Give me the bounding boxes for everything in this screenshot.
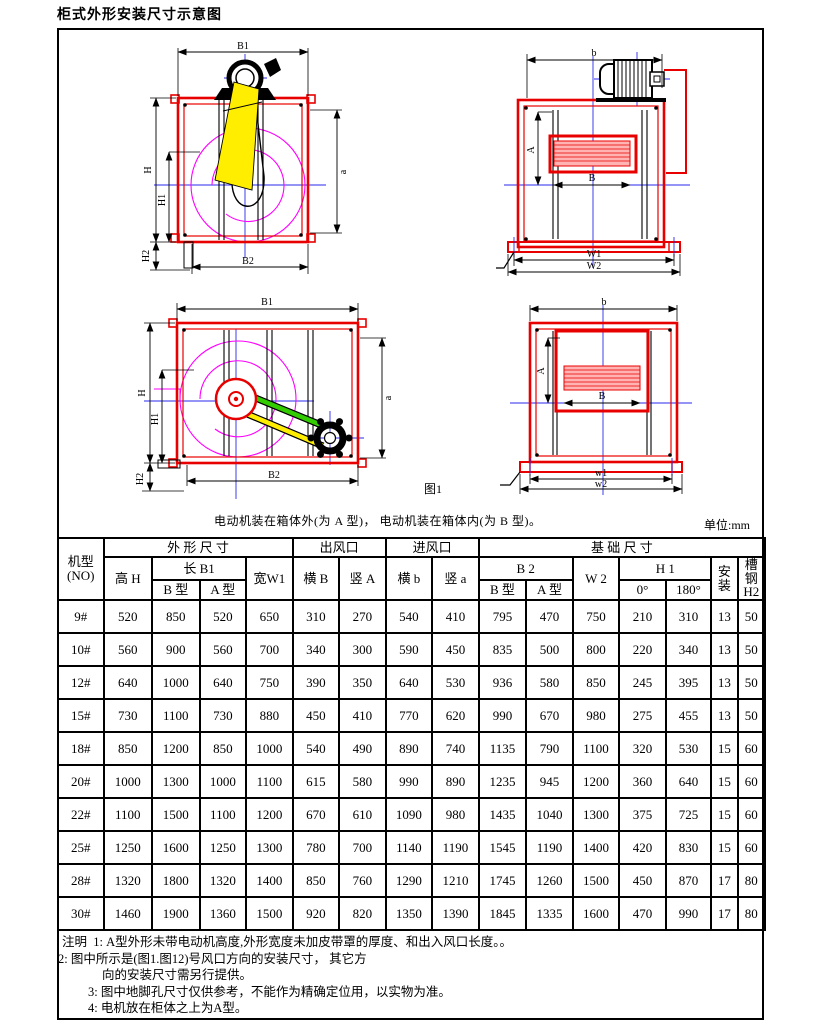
value-cell: 945 bbox=[526, 765, 573, 798]
figure-label: 图1 bbox=[424, 480, 442, 497]
header-outlet: 出风口 bbox=[293, 538, 386, 557]
model-cell: 10# bbox=[58, 633, 104, 666]
value-cell: 640 bbox=[386, 666, 433, 699]
value-cell: 936 bbox=[479, 666, 527, 699]
header-deg0: 0° bbox=[619, 580, 666, 600]
table-row: 28#1320180013201400850760129012101745126… bbox=[58, 864, 765, 897]
value-cell: 80 bbox=[738, 864, 765, 897]
drawing-side-view-a: b A B W1 W2 bbox=[496, 40, 696, 285]
value-cell: 1600 bbox=[573, 897, 620, 930]
value-cell: 60 bbox=[738, 732, 765, 765]
value-cell: 890 bbox=[386, 732, 433, 765]
value-cell: 700 bbox=[246, 633, 293, 666]
model-cell: 12# bbox=[58, 666, 104, 699]
notes: 注明 1: A型外形未带电动机高度,外形宽度未加皮带罩的厚度、和出入风口长度。。… bbox=[62, 934, 762, 1017]
model-cell: 30# bbox=[58, 897, 104, 930]
value-cell: 360 bbox=[619, 765, 666, 798]
dim-label-h1: H1 bbox=[157, 194, 168, 206]
support-columns bbox=[553, 110, 647, 239]
value-cell: 1000 bbox=[246, 732, 293, 765]
value-cell: 220 bbox=[619, 633, 666, 666]
header-b1-type-a: A 型 bbox=[200, 580, 247, 600]
value-cell: 13 bbox=[711, 600, 737, 633]
value-cell: 990 bbox=[666, 897, 712, 930]
page-title: 柜式外形安装尺寸示意图 bbox=[57, 4, 222, 24]
value-cell: 210 bbox=[619, 600, 666, 633]
header-length-b1: 长 B1 bbox=[152, 557, 246, 580]
value-cell: 1800 bbox=[152, 864, 200, 897]
impeller bbox=[564, 366, 640, 390]
table-row: 20#1000130010001100615580990890123594512… bbox=[58, 765, 765, 798]
dim-label-w1: W1 bbox=[587, 249, 601, 260]
dim-label-B: B bbox=[599, 391, 606, 402]
value-cell: 1500 bbox=[573, 864, 620, 897]
value-cell: 730 bbox=[104, 699, 153, 732]
value-cell: 1320 bbox=[200, 864, 247, 897]
header-b2-type-b: B 型 bbox=[479, 580, 527, 600]
value-cell: 1400 bbox=[573, 831, 620, 864]
value-cell: 300 bbox=[339, 633, 386, 666]
value-cell: 13 bbox=[711, 633, 737, 666]
value-cell: 1000 bbox=[104, 765, 153, 798]
header-outline-dims: 外 形 尺 寸 bbox=[104, 538, 293, 557]
dim-label-a: a bbox=[338, 169, 349, 174]
header-height-h: 高 H bbox=[104, 557, 153, 600]
value-cell: 1500 bbox=[152, 798, 200, 831]
value-cell: 1400 bbox=[246, 864, 293, 897]
value-cell: 1135 bbox=[479, 732, 527, 765]
value-cell: 410 bbox=[339, 699, 386, 732]
value-cell: 560 bbox=[104, 633, 153, 666]
value-cell: 880 bbox=[246, 699, 293, 732]
table-row: 10#5609005607003403005904508355008002203… bbox=[58, 633, 765, 666]
value-cell: 1000 bbox=[200, 765, 247, 798]
value-cell: 980 bbox=[432, 798, 479, 831]
value-cell: 835 bbox=[479, 633, 527, 666]
dimension-table: 机型 (NO) 外 形 尺 寸 出风口 进风口 基 础 尺 寸 高 H 长 B1… bbox=[57, 537, 766, 931]
value-cell: 1845 bbox=[479, 897, 527, 930]
value-cell: 1300 bbox=[573, 798, 620, 831]
value-cell: 850 bbox=[293, 864, 340, 897]
value-cell: 13 bbox=[711, 666, 737, 699]
value-cell: 780 bbox=[293, 831, 340, 864]
header-b2-type-a: A 型 bbox=[526, 580, 573, 600]
value-cell: 1100 bbox=[246, 765, 293, 798]
dimension-table-body: 9#52085052065031027054041079547075021031… bbox=[58, 600, 765, 930]
value-cell: 15 bbox=[711, 798, 737, 831]
value-cell: 50 bbox=[738, 666, 765, 699]
header-base-dims: 基 础 尺 寸 bbox=[479, 538, 765, 557]
figure-caption: 电动机装在箱体外(为 A 型)， 电动机装在箱体内(为 B 型)。 bbox=[214, 512, 542, 529]
value-cell: 50 bbox=[738, 600, 765, 633]
value-cell: 790 bbox=[526, 732, 573, 765]
value-cell: 560 bbox=[200, 633, 247, 666]
value-cell: 1300 bbox=[246, 831, 293, 864]
value-cell: 1300 bbox=[152, 765, 200, 798]
model-cell: 28# bbox=[58, 864, 104, 897]
model-cell: 18# bbox=[58, 732, 104, 765]
anchor-hook bbox=[500, 472, 520, 485]
value-cell: 530 bbox=[432, 666, 479, 699]
value-cell: 760 bbox=[339, 864, 386, 897]
header-model: 机型 (NO) bbox=[58, 538, 104, 600]
value-cell: 15 bbox=[711, 732, 737, 765]
value-cell: 540 bbox=[386, 600, 433, 633]
table-row: 15#7301100730880450410770620990670980275… bbox=[58, 699, 765, 732]
value-cell: 650 bbox=[246, 600, 293, 633]
value-cell: 390 bbox=[293, 666, 340, 699]
value-cell: 850 bbox=[104, 732, 153, 765]
value-cell: 850 bbox=[152, 600, 200, 633]
value-cell: 1090 bbox=[386, 798, 433, 831]
header-b1-type-b: B 型 bbox=[152, 580, 200, 600]
drawing-front-view-b: B1 H H1 H2 B2 a bbox=[134, 293, 396, 508]
value-cell: 640 bbox=[666, 765, 712, 798]
header-width-w1: 宽W1 bbox=[246, 557, 293, 600]
value-cell: 470 bbox=[619, 897, 666, 930]
value-cell: 1360 bbox=[200, 897, 247, 930]
note-line: 2: 图中所示是(图1.图12)号风口方向的安装尺寸， 其它方 bbox=[58, 951, 762, 968]
value-cell: 890 bbox=[432, 765, 479, 798]
table-row: 25#1250160012501300780700114011901545119… bbox=[58, 831, 765, 864]
header-deg180: 180° bbox=[666, 580, 712, 600]
value-cell: 820 bbox=[339, 897, 386, 930]
value-cell: 1100 bbox=[573, 732, 620, 765]
value-cell: 750 bbox=[246, 666, 293, 699]
value-cell: 350 bbox=[339, 666, 386, 699]
value-cell: 1600 bbox=[152, 831, 200, 864]
header-inlet: 进风口 bbox=[386, 538, 479, 557]
value-cell: 1200 bbox=[573, 765, 620, 798]
anchor-hook bbox=[496, 252, 514, 268]
value-cell: 850 bbox=[200, 732, 247, 765]
value-cell: 1545 bbox=[479, 831, 527, 864]
table-row: 18#8501200850100054049089074011357901100… bbox=[58, 732, 765, 765]
value-cell: 1320 bbox=[104, 864, 153, 897]
table-row: 12#6401000640750390350640530936580850245… bbox=[58, 666, 765, 699]
note-line: 4: 电机放在柜体之上为A型。 bbox=[88, 1000, 762, 1017]
value-cell: 1500 bbox=[246, 897, 293, 930]
value-cell: 17 bbox=[711, 897, 737, 930]
dim-label-h2: H2 bbox=[141, 250, 152, 262]
value-cell: 540 bbox=[293, 732, 340, 765]
value-cell: 15 bbox=[711, 765, 737, 798]
value-cell: 900 bbox=[152, 633, 200, 666]
table-row: 30#1460190013601500920820135013901845133… bbox=[58, 897, 765, 930]
dim-label-w2: w2 bbox=[595, 479, 607, 490]
value-cell: 1100 bbox=[152, 699, 200, 732]
value-cell: 15 bbox=[711, 831, 737, 864]
value-cell: 470 bbox=[526, 600, 573, 633]
value-cell: 740 bbox=[432, 732, 479, 765]
drawing-side-view-b: b A B w1 w2 bbox=[496, 295, 701, 507]
value-cell: 13 bbox=[711, 699, 737, 732]
header-outlet-v: 竖 A bbox=[339, 557, 386, 600]
value-cell: 340 bbox=[293, 633, 340, 666]
note-line: 3: 图中地脚孔尺寸仅供参考，不能作为精确定位用，以实物为准。 bbox=[88, 984, 762, 1001]
dim-label-b1: B1 bbox=[261, 297, 273, 308]
table-row: 9#52085052065031027054041079547075021031… bbox=[58, 600, 765, 633]
value-cell: 920 bbox=[293, 897, 340, 930]
value-cell: 1290 bbox=[386, 864, 433, 897]
value-cell: 615 bbox=[293, 765, 340, 798]
value-cell: 1745 bbox=[479, 864, 527, 897]
value-cell: 320 bbox=[619, 732, 666, 765]
value-cell: 275 bbox=[619, 699, 666, 732]
value-cell: 270 bbox=[339, 600, 386, 633]
value-cell: 770 bbox=[386, 699, 433, 732]
value-cell: 610 bbox=[339, 798, 386, 831]
value-cell: 580 bbox=[339, 765, 386, 798]
value-cell: 1900 bbox=[152, 897, 200, 930]
value-cell: 1335 bbox=[526, 897, 573, 930]
value-cell: 990 bbox=[386, 765, 433, 798]
value-cell: 340 bbox=[666, 633, 712, 666]
dim-label-b: b bbox=[592, 48, 597, 59]
value-cell: 490 bbox=[339, 732, 386, 765]
dim-label-b2: B2 bbox=[242, 256, 254, 267]
value-cell: 450 bbox=[293, 699, 340, 732]
value-cell: 1040 bbox=[526, 798, 573, 831]
value-cell: 1460 bbox=[104, 897, 153, 930]
dim-label-h: H bbox=[137, 389, 148, 396]
dim-label-h: H bbox=[143, 166, 154, 173]
value-cell: 590 bbox=[386, 633, 433, 666]
value-cell: 450 bbox=[619, 864, 666, 897]
value-cell: 750 bbox=[573, 600, 620, 633]
value-cell: 50 bbox=[738, 699, 765, 732]
model-cell: 20# bbox=[58, 765, 104, 798]
value-cell: 730 bbox=[200, 699, 247, 732]
value-cell: 1260 bbox=[526, 864, 573, 897]
value-cell: 455 bbox=[666, 699, 712, 732]
model-cell: 22# bbox=[58, 798, 104, 831]
value-cell: 245 bbox=[619, 666, 666, 699]
value-cell: 1190 bbox=[526, 831, 573, 864]
value-cell: 1250 bbox=[104, 831, 153, 864]
value-cell: 60 bbox=[738, 765, 765, 798]
unit-label: 单位:mm bbox=[704, 516, 750, 533]
motor bbox=[596, 60, 666, 102]
dim-label-w2: W2 bbox=[587, 261, 601, 272]
value-cell: 795 bbox=[479, 600, 527, 633]
value-cell: 580 bbox=[526, 666, 573, 699]
value-cell: 80 bbox=[738, 897, 765, 930]
value-cell: 50 bbox=[738, 633, 765, 666]
value-cell: 530 bbox=[666, 732, 712, 765]
header-inlet-v: 竖 a bbox=[432, 557, 479, 600]
value-cell: 1100 bbox=[104, 798, 153, 831]
value-cell: 1100 bbox=[200, 798, 247, 831]
value-cell: 60 bbox=[738, 798, 765, 831]
value-cell: 60 bbox=[738, 831, 765, 864]
value-cell: 1140 bbox=[386, 831, 433, 864]
dim-label-A: A bbox=[526, 146, 537, 154]
value-cell: 520 bbox=[104, 600, 153, 633]
value-cell: 980 bbox=[573, 699, 620, 732]
value-cell: 725 bbox=[666, 798, 712, 831]
value-cell: 700 bbox=[339, 831, 386, 864]
value-cell: 420 bbox=[619, 831, 666, 864]
header-install: 安装 bbox=[711, 557, 737, 600]
value-cell: 850 bbox=[573, 666, 620, 699]
value-cell: 410 bbox=[432, 600, 479, 633]
model-cell: 15# bbox=[58, 699, 104, 732]
value-cell: 990 bbox=[479, 699, 527, 732]
drawing-front-view-a: B1 H H1 H2 B2 a bbox=[140, 38, 355, 296]
pulley bbox=[216, 379, 256, 419]
dim-label-h2: H2 bbox=[135, 473, 146, 485]
value-cell: 395 bbox=[666, 666, 712, 699]
dim-label-b: b bbox=[602, 297, 607, 308]
value-cell: 640 bbox=[104, 666, 153, 699]
value-cell: 670 bbox=[293, 798, 340, 831]
value-cell: 520 bbox=[200, 600, 247, 633]
header-outlet-h: 横 B bbox=[293, 557, 340, 600]
header-channel: 槽钢 H2 bbox=[738, 557, 765, 600]
value-cell: 620 bbox=[432, 699, 479, 732]
value-cell: 500 bbox=[526, 633, 573, 666]
dim-label-b2: B2 bbox=[268, 470, 280, 481]
header-inlet-h: 横 b bbox=[386, 557, 433, 600]
dim-label-A: A bbox=[536, 367, 547, 375]
value-cell: 375 bbox=[619, 798, 666, 831]
dim-label-h1: H1 bbox=[150, 413, 161, 425]
dim-label-a: a bbox=[383, 395, 394, 400]
note-line: 向的安装尺寸需另行提供。 bbox=[102, 967, 762, 984]
value-cell: 800 bbox=[573, 633, 620, 666]
side-duct bbox=[664, 70, 686, 173]
value-cell: 1190 bbox=[432, 831, 479, 864]
impeller bbox=[554, 141, 630, 166]
value-cell: 1435 bbox=[479, 798, 527, 831]
value-cell: 450 bbox=[432, 633, 479, 666]
value-cell: 870 bbox=[666, 864, 712, 897]
value-cell: 1235 bbox=[479, 765, 527, 798]
value-cell: 670 bbox=[526, 699, 573, 732]
header-h1: H 1 bbox=[619, 557, 711, 580]
table-row: 22#1100150011001200670610109098014351040… bbox=[58, 798, 765, 831]
model-cell: 25# bbox=[58, 831, 104, 864]
value-cell: 1200 bbox=[152, 732, 200, 765]
value-cell: 830 bbox=[666, 831, 712, 864]
value-cell: 1200 bbox=[246, 798, 293, 831]
note-line: 注明 1: A型外形未带电动机高度,外形宽度未加皮带罩的厚度、和出入风口长度。。 bbox=[62, 934, 762, 951]
value-cell: 1210 bbox=[432, 864, 479, 897]
dim-label-w1: w1 bbox=[595, 468, 607, 479]
model-cell: 9# bbox=[58, 600, 104, 633]
value-cell: 640 bbox=[200, 666, 247, 699]
dim-label-B: B bbox=[589, 173, 596, 184]
header-b2: B 2 bbox=[479, 557, 573, 580]
value-cell: 1000 bbox=[152, 666, 200, 699]
value-cell: 1390 bbox=[432, 897, 479, 930]
value-cell: 1350 bbox=[386, 897, 433, 930]
value-cell: 310 bbox=[666, 600, 712, 633]
value-cell: 1250 bbox=[200, 831, 247, 864]
value-cell: 310 bbox=[293, 600, 340, 633]
dim-label-b1: B1 bbox=[237, 41, 249, 52]
value-cell: 17 bbox=[711, 864, 737, 897]
header-w2: W 2 bbox=[573, 557, 620, 600]
